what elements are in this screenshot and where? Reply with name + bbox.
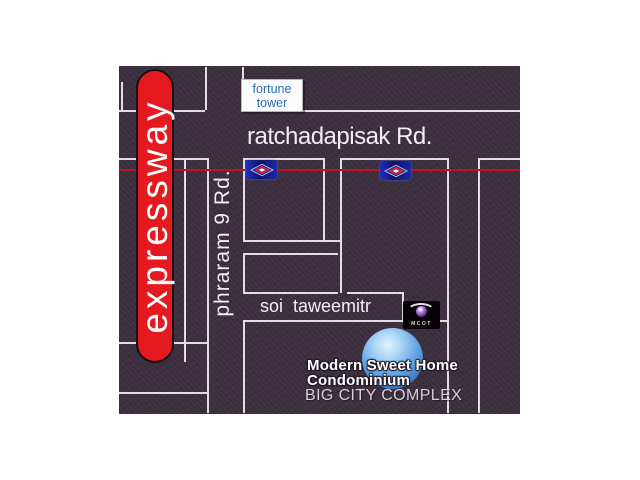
- road-line: [243, 253, 338, 255]
- ratchadapisak-road-label: ratchadapisak Rd.: [247, 123, 432, 151]
- expressway-label: expressway: [134, 98, 176, 333]
- map-page: expressway fortune tower ratchadapisak R…: [0, 0, 640, 480]
- road-line: [184, 158, 186, 362]
- fortune-tower-label-line1: fortune: [242, 82, 302, 96]
- mrt-station-diamond-icon: [380, 161, 411, 180]
- road-line: [480, 158, 520, 160]
- road-line: [207, 158, 209, 413]
- mcot-logo-text: MCOT: [403, 321, 440, 327]
- road-line: [243, 292, 338, 294]
- mrt-station-diamond-icon: [246, 160, 277, 179]
- road-line: [340, 158, 342, 293]
- location-map: expressway fortune tower ratchadapisak R…: [119, 66, 520, 414]
- expressway-road: expressway: [136, 69, 174, 363]
- fortune-tower-label-line2: tower: [242, 96, 302, 110]
- road-line: [243, 240, 340, 242]
- destination-label: Modern Sweet Home Condominium: [307, 359, 458, 388]
- phraram9-road-label: phraram 9 Rd.: [211, 163, 235, 323]
- road-line: [340, 158, 447, 160]
- eye-glint-icon: [419, 308, 422, 311]
- road-line: [119, 392, 207, 394]
- soi-taweemitr-label: soi taweemitr: [260, 296, 371, 317]
- destination-name-line2: Condominium: [307, 374, 458, 389]
- road-line: [205, 67, 207, 110]
- road-line: [243, 320, 245, 413]
- road-line: [243, 253, 245, 292]
- metro-line: [119, 169, 520, 171]
- road-line: [347, 292, 402, 294]
- mcot-eye-logo-icon: MCOT: [403, 301, 440, 329]
- fortune-tower-box: fortune tower: [241, 79, 303, 112]
- road-line: [478, 158, 480, 413]
- big-city-complex-label: BIG CITY COMPLEX: [305, 387, 462, 405]
- road-line: [121, 82, 123, 110]
